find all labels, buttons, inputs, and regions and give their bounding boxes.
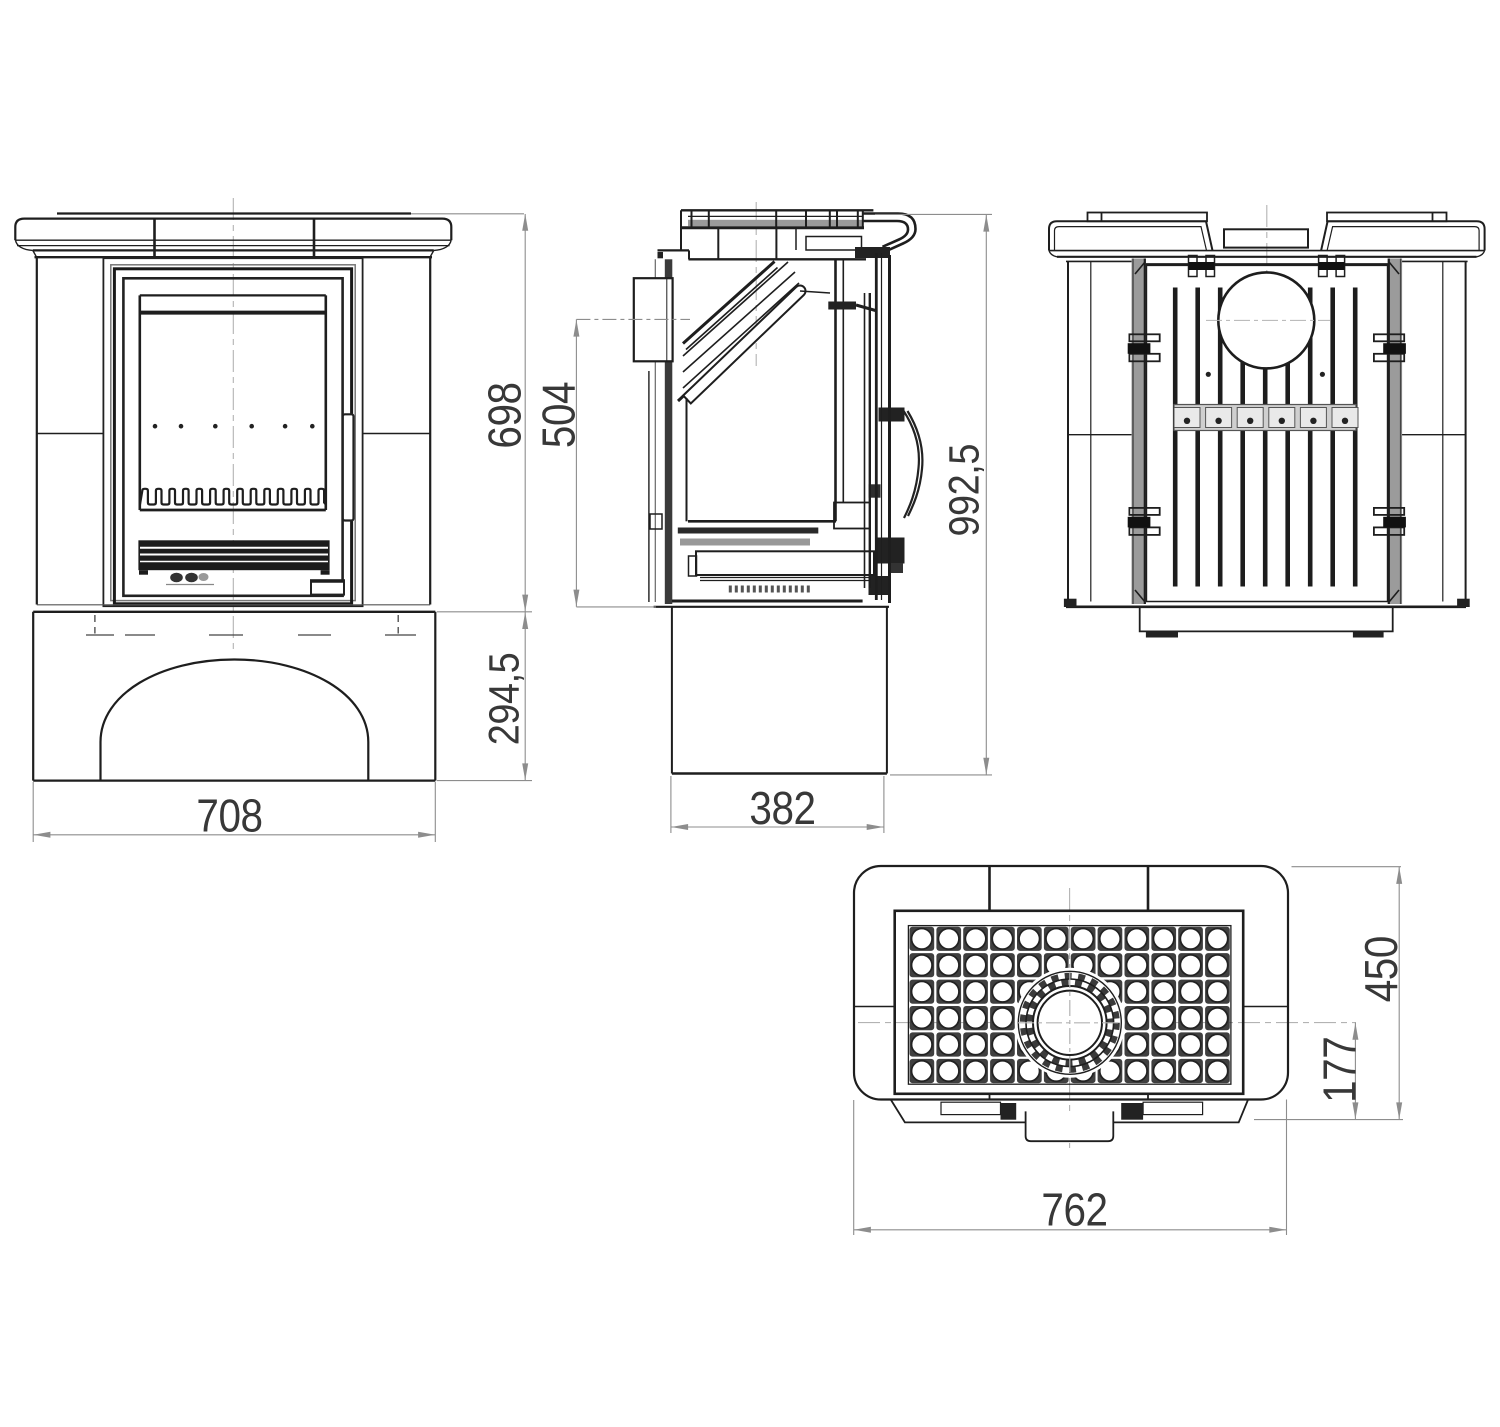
svg-text:504: 504 bbox=[534, 382, 585, 448]
svg-text:177: 177 bbox=[1315, 1037, 1366, 1103]
svg-text:698: 698 bbox=[480, 382, 531, 448]
svg-text:382: 382 bbox=[749, 784, 815, 835]
svg-text:294,5: 294,5 bbox=[479, 653, 528, 745]
svg-text:708: 708 bbox=[196, 791, 262, 842]
svg-text:762: 762 bbox=[1041, 1185, 1107, 1236]
svg-text:992,5: 992,5 bbox=[939, 444, 988, 536]
svg-text:450: 450 bbox=[1357, 936, 1408, 1002]
